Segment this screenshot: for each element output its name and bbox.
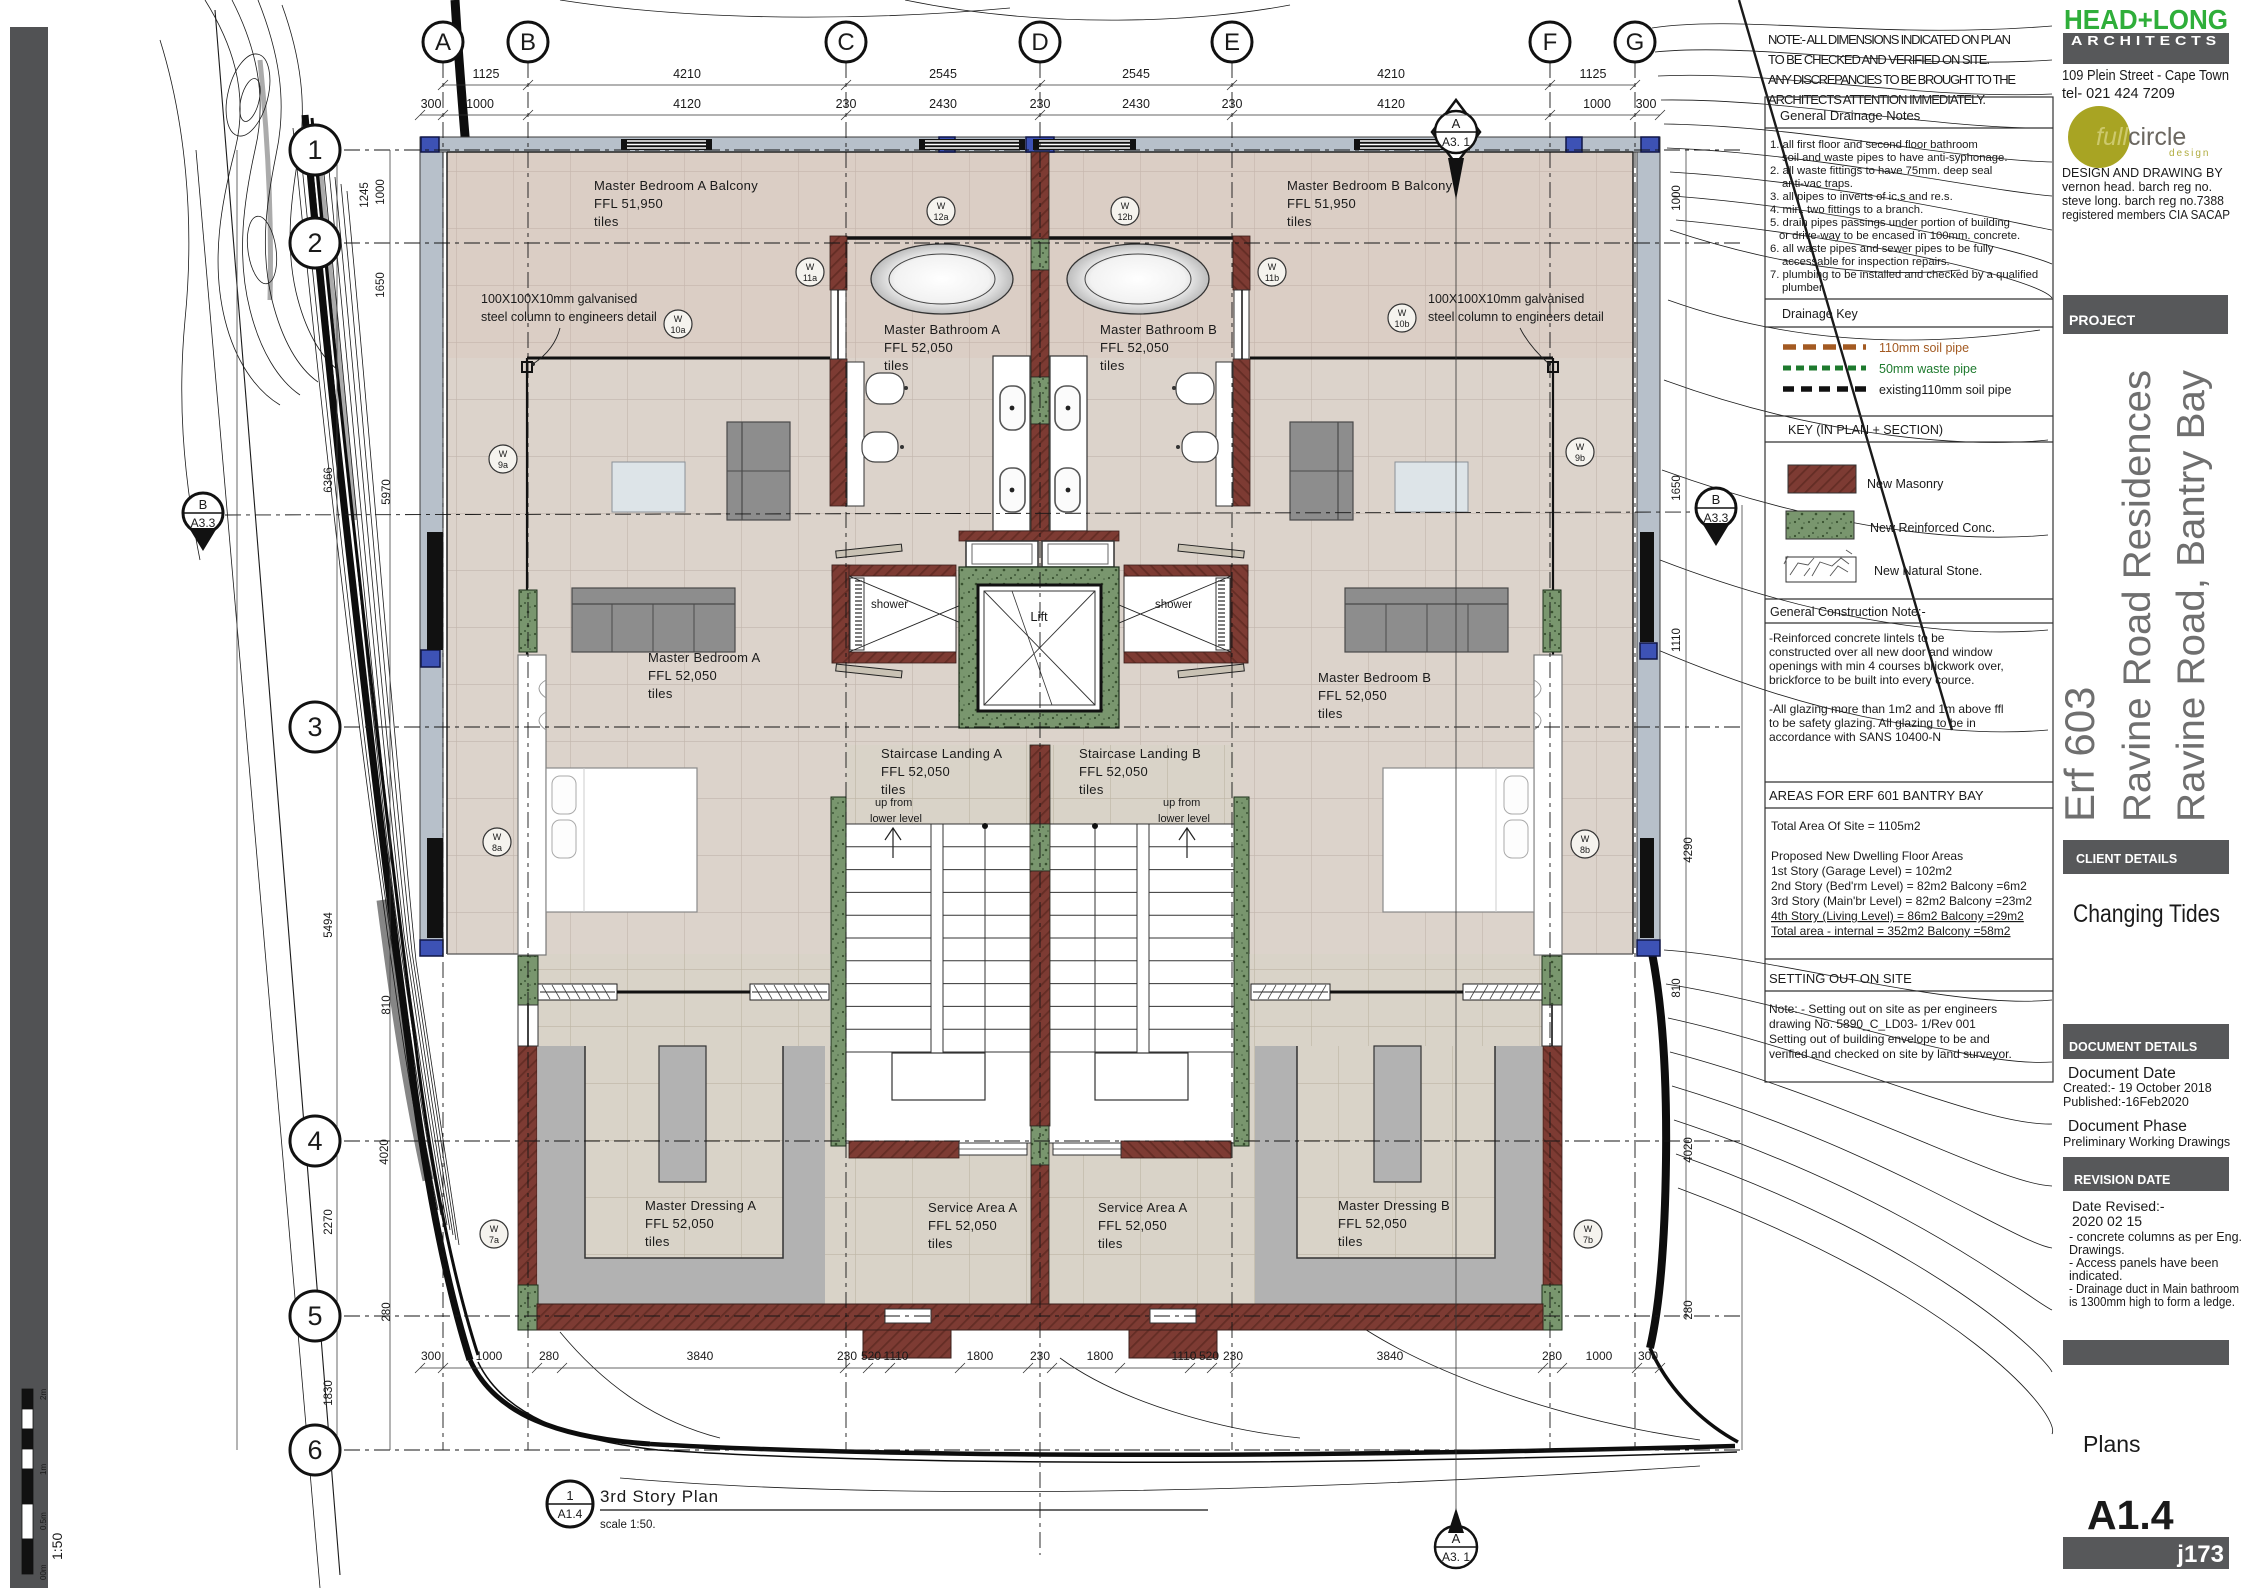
svg-text:-Reinforced concrete lintels t: -Reinforced concrete lintels to be bbox=[1769, 631, 1945, 645]
svg-text:tiles: tiles bbox=[1318, 706, 1343, 721]
svg-text:FFL 52,050: FFL 52,050 bbox=[1338, 1216, 1407, 1231]
svg-text:CLIENT DETAILS: CLIENT DETAILS bbox=[2076, 852, 2177, 866]
svg-text:A: A bbox=[1452, 1531, 1461, 1546]
svg-text:steel column to engineers deta: steel column to engineers detail bbox=[1428, 310, 1604, 324]
svg-text:12a: 12a bbox=[933, 212, 948, 222]
svg-text:Drawings.: Drawings. bbox=[2069, 1243, 2125, 1257]
svg-text:- concrete columns as per Eng.: - concrete columns as per Eng. bbox=[2069, 1230, 2242, 1244]
svg-text:3rd Story (Main'br Level) = 8: 3rd Story (Main'br Level) = 82m2 Balcony… bbox=[1771, 894, 2032, 908]
svg-text:FFL 51,950: FFL 51,950 bbox=[594, 196, 663, 211]
svg-text:7. plumbing to be installed an: 7. plumbing to be installed and checked … bbox=[1770, 269, 2038, 281]
svg-text:3. all pipes to inverts of ic.: 3. all pipes to inverts of ic.s and re.s… bbox=[1770, 191, 1953, 203]
svg-text:A3. 1: A3. 1 bbox=[1442, 135, 1470, 149]
svg-text:brickforce to be built into ev: brickforce to be built into every cource… bbox=[1769, 673, 1974, 687]
svg-text:8a: 8a bbox=[492, 843, 502, 853]
svg-text:G: G bbox=[1626, 29, 1645, 56]
svg-text:Changing Tides: Changing Tides bbox=[2073, 900, 2220, 928]
svg-text:W: W bbox=[499, 449, 508, 459]
svg-text:New Masonry: New Masonry bbox=[1867, 477, 1944, 491]
svg-text:Ravine Road, Bantry Bay: Ravine Road, Bantry Bay bbox=[2170, 369, 2213, 822]
svg-text:4020: 4020 bbox=[1683, 1137, 1695, 1163]
svg-text:W: W bbox=[493, 832, 502, 842]
svg-text:5. drain pipes passings under: 5. drain pipes passings under portion of… bbox=[1770, 217, 2010, 229]
svg-text:A3.3: A3.3 bbox=[191, 516, 216, 530]
svg-text:280: 280 bbox=[1542, 1349, 1562, 1363]
svg-text:5494: 5494 bbox=[323, 912, 335, 938]
svg-text:5: 5 bbox=[307, 1301, 322, 1331]
svg-text:W: W bbox=[1268, 262, 1277, 272]
svg-text:F: F bbox=[1543, 29, 1558, 56]
svg-text:Note: - Setting out on site a: Note: - Setting out on site as per engin… bbox=[1769, 1002, 1997, 1016]
svg-text:indicated.: indicated. bbox=[2069, 1269, 2123, 1283]
svg-text:Service Area A: Service Area A bbox=[1098, 1200, 1187, 1215]
svg-text:2545: 2545 bbox=[929, 67, 957, 81]
svg-text:A: A bbox=[435, 29, 451, 56]
svg-text:230: 230 bbox=[1030, 97, 1051, 111]
svg-text:1m: 1m bbox=[39, 1464, 48, 1475]
svg-text:W: W bbox=[674, 314, 683, 324]
svg-text:4020: 4020 bbox=[379, 1139, 391, 1165]
svg-text:1st Story (Garage Level) = 102: 1st Story (Garage Level) = 102m2 bbox=[1771, 864, 1952, 878]
svg-text:0.5m: 0.5m bbox=[39, 1512, 48, 1530]
svg-text:openings with min 4 courses br: openings with min 4 courses brickwork ov… bbox=[1769, 659, 2004, 673]
svg-text:8b: 8b bbox=[1580, 845, 1590, 855]
svg-text:AREAS FOR ERF 601 BANTRY BAY: AREAS FOR ERF 601 BANTRY BAY bbox=[1769, 788, 1984, 803]
svg-text:W: W bbox=[1576, 442, 1585, 452]
svg-text:B: B bbox=[1712, 492, 1721, 507]
svg-text:2m: 2m bbox=[39, 1389, 48, 1400]
svg-text:to be safety glazing. All glaz: to be safety glazing. All glazing to be … bbox=[1769, 716, 1976, 730]
svg-text:W: W bbox=[1398, 308, 1407, 318]
svg-text:j173: j173 bbox=[2176, 1541, 2224, 1568]
svg-text:1:50: 1:50 bbox=[49, 1533, 65, 1560]
svg-text:Preliminary Working Drawings: Preliminary Working Drawings bbox=[2063, 1135, 2230, 1149]
svg-text:ARCHITECTS ATTENTION IMMEDIATE: ARCHITECTS ATTENTION IMMEDIATELY. bbox=[1768, 92, 1986, 107]
svg-text:300: 300 bbox=[1638, 1349, 1658, 1363]
svg-text:Erf 603: Erf 603 bbox=[2056, 687, 2103, 822]
svg-text:300: 300 bbox=[421, 97, 442, 111]
svg-text:W: W bbox=[1581, 834, 1590, 844]
svg-text:12b: 12b bbox=[1117, 212, 1132, 222]
svg-text:Master Dressing A: Master Dressing A bbox=[645, 1198, 756, 1213]
svg-text:is 1300mm high to form a ledge: is 1300mm high to form a ledge. bbox=[2069, 1295, 2235, 1309]
svg-text:7b: 7b bbox=[1583, 1235, 1593, 1245]
svg-text:6: 6 bbox=[307, 1435, 322, 1465]
svg-text:D: D bbox=[1031, 29, 1048, 56]
svg-text:3rd Story Plan: 3rd Story Plan bbox=[600, 1487, 719, 1506]
svg-text:1000: 1000 bbox=[1671, 185, 1683, 211]
svg-text:2430: 2430 bbox=[929, 97, 957, 111]
svg-text:6. all waste pipes and sewer p: 6. all waste pipes and sewer pipes to be… bbox=[1770, 243, 1994, 255]
svg-text:-All glazing more than 1m2 and: -All glazing more than 1m2 and 1m above … bbox=[1769, 702, 2004, 716]
svg-text:Master Dressing B: Master Dressing B bbox=[1338, 1198, 1450, 1213]
svg-text:accordance with SANS 10400-N: accordance with SANS 10400-N bbox=[1769, 730, 1941, 744]
svg-text:REVISION DATE: REVISION DATE bbox=[2074, 1173, 2170, 1187]
svg-text:1110: 1110 bbox=[1671, 628, 1683, 652]
svg-text:1000: 1000 bbox=[1586, 1349, 1613, 1363]
svg-text:Master Bathroom B: Master Bathroom B bbox=[1100, 322, 1217, 337]
svg-text:109 Plein Street - Cape Tow: 109 Plein Street - Cape Town bbox=[2062, 68, 2229, 84]
svg-text:4290: 4290 bbox=[1683, 837, 1695, 863]
svg-text:1125: 1125 bbox=[1580, 67, 1607, 81]
svg-text:4120: 4120 bbox=[1377, 97, 1405, 111]
svg-text:DESIGN AND DRAWING BY: DESIGN AND DRAWING BY bbox=[2062, 166, 2223, 180]
svg-text:W: W bbox=[490, 1224, 499, 1234]
svg-text:FFL 52,050: FFL 52,050 bbox=[648, 668, 717, 683]
svg-text:shower: shower bbox=[871, 599, 908, 611]
svg-text:Staircase Landing B: Staircase Landing B bbox=[1079, 746, 1201, 761]
svg-text:design: design bbox=[2169, 148, 2210, 159]
svg-text:1650: 1650 bbox=[375, 272, 387, 298]
svg-text:tiles: tiles bbox=[645, 1234, 670, 1249]
svg-text:SETTING OUT ON SITE: SETTING OUT ON SITE bbox=[1769, 971, 1912, 986]
svg-text:A: A bbox=[1452, 116, 1461, 131]
svg-text:ARCHITECTS: ARCHITECTS bbox=[2071, 33, 2221, 48]
svg-text:Plans: Plans bbox=[2083, 1431, 2141, 1457]
svg-text:10a: 10a bbox=[670, 325, 685, 335]
svg-text:3840: 3840 bbox=[1377, 1349, 1404, 1363]
svg-text:tiles: tiles bbox=[594, 214, 619, 229]
svg-text:1650: 1650 bbox=[1671, 475, 1683, 501]
svg-text:300: 300 bbox=[421, 1349, 441, 1363]
svg-text:Master Bedroom A Balcony: Master Bedroom A Balcony bbox=[594, 178, 758, 193]
svg-text:1800: 1800 bbox=[1087, 1349, 1114, 1363]
svg-text:810: 810 bbox=[381, 995, 393, 1014]
svg-text:ANY DISCREPANCIES TO BE BROUGH: ANY DISCREPANCIES TO BE BROUGHT TO THE bbox=[1768, 72, 2016, 87]
svg-text:9a: 9a bbox=[498, 460, 508, 470]
svg-text:9b: 9b bbox=[1575, 453, 1585, 463]
svg-text:Master Bathroom A: Master Bathroom A bbox=[884, 322, 1000, 337]
svg-text:or drive-way to be encased in: or drive-way to be encased in 100mm. con… bbox=[1779, 230, 2020, 242]
svg-text:circle: circle bbox=[2128, 123, 2186, 151]
svg-text:existing110mm soil pipe: existing110mm soil pipe bbox=[1879, 383, 2012, 397]
svg-text:- Access panels have been: - Access panels have been bbox=[2069, 1256, 2218, 1270]
svg-text:up from: up from bbox=[1163, 797, 1200, 809]
svg-text:General Drainage Notes: General Drainage Notes bbox=[1780, 108, 1921, 123]
svg-text:tiles: tiles bbox=[1079, 782, 1104, 797]
svg-text:DOCUMENT DETAILS: DOCUMENT DETAILS bbox=[2069, 1040, 2197, 1054]
svg-text:tel- 021 424 7209: tel- 021 424 7209 bbox=[2062, 86, 2175, 102]
svg-text:1000: 1000 bbox=[1583, 97, 1611, 111]
svg-text:1245: 1245 bbox=[359, 182, 371, 208]
svg-text:tiles: tiles bbox=[928, 1236, 953, 1251]
svg-text:tiles: tiles bbox=[1098, 1236, 1123, 1251]
svg-text:1110: 1110 bbox=[884, 1349, 909, 1363]
svg-text:W: W bbox=[1584, 1224, 1593, 1234]
svg-text:280: 280 bbox=[1683, 1300, 1695, 1319]
svg-text:Created:- 19 October 2018: Created:- 19 October 2018 bbox=[2063, 1081, 2212, 1095]
svg-text:50mm waste pipe: 50mm waste pipe bbox=[1879, 362, 1977, 376]
svg-text:1000: 1000 bbox=[466, 97, 494, 111]
svg-text:tiles: tiles bbox=[884, 358, 909, 373]
svg-text:100X100X10mm galvanised: 100X100X10mm galvanised bbox=[1428, 292, 1584, 306]
svg-text:up from: up from bbox=[875, 797, 912, 809]
svg-text:W: W bbox=[937, 201, 946, 211]
svg-text:3: 3 bbox=[307, 712, 322, 742]
svg-text:Staircase Landing A: Staircase Landing A bbox=[881, 746, 1002, 761]
svg-text:00m: 00m bbox=[39, 1564, 48, 1580]
svg-text:KEY (IN PLAN + SECTION): KEY (IN PLAN + SECTION) bbox=[1788, 423, 1943, 437]
svg-text:FFL 51,950: FFL 51,950 bbox=[1287, 196, 1356, 211]
svg-text:Document Date: Document Date bbox=[2068, 1065, 2176, 1082]
svg-text:2nd Story (Bed'rm Level) = 82: 2nd Story (Bed'rm Level) = 82m2 Balcony … bbox=[1771, 879, 2027, 893]
svg-text:vernon head. barch reg no.: vernon head. barch reg no. bbox=[2062, 180, 2212, 194]
svg-text:1000: 1000 bbox=[476, 1349, 503, 1363]
svg-text:1: 1 bbox=[566, 1488, 573, 1503]
svg-text:tiles: tiles bbox=[648, 686, 673, 701]
svg-text:registered members CIA SACAP: registered members CIA SACAP bbox=[2062, 208, 2230, 222]
svg-text:lower level: lower level bbox=[1158, 813, 1210, 825]
svg-text:1830: 1830 bbox=[323, 1380, 335, 1406]
svg-text:810: 810 bbox=[1671, 978, 1683, 997]
svg-text:280: 280 bbox=[539, 1349, 559, 1363]
svg-text:Master Bedroom A: Master Bedroom A bbox=[648, 650, 760, 665]
svg-text:Master Bedroom B: Master Bedroom B bbox=[1318, 670, 1431, 685]
svg-text:Date Revised:-: Date Revised:- bbox=[2072, 1198, 2165, 1214]
svg-text:- Drainage duct in Main bathro: - Drainage duct in Main bathroom bbox=[2069, 1282, 2239, 1296]
svg-text:2020 02 15: 2020 02 15 bbox=[2072, 1213, 2142, 1229]
svg-text:anti-vac traps.: anti-vac traps. bbox=[1782, 178, 1853, 190]
svg-text:Ravine Road Residences: Ravine Road Residences bbox=[2116, 370, 2159, 822]
svg-text:4210: 4210 bbox=[1377, 67, 1405, 81]
svg-text:TO BE CHECKED AND VERIFIED ON: TO BE CHECKED AND VERIFIED ON SITE. bbox=[1768, 52, 1990, 67]
svg-text:Lift: Lift bbox=[1030, 609, 1048, 624]
svg-text:accessable for inspection repa: accessable for inspection repairs. bbox=[1782, 256, 1950, 268]
svg-text:General Construction Note:-: General Construction Note:- bbox=[1770, 605, 1926, 619]
svg-text:steve long. barch reg no.7388: steve long. barch reg no.7388 bbox=[2062, 194, 2224, 208]
svg-text:Setting out of building envelo: Setting out of building envelope to be a… bbox=[1769, 1032, 1990, 1046]
svg-text:300: 300 bbox=[1636, 97, 1657, 111]
svg-text:Document Phase: Document Phase bbox=[2068, 1118, 2187, 1135]
svg-text:A3. 1: A3. 1 bbox=[1442, 1550, 1470, 1564]
svg-text:7a: 7a bbox=[489, 1235, 499, 1245]
svg-text:3840: 3840 bbox=[687, 1349, 714, 1363]
svg-text:FFL 52,050: FFL 52,050 bbox=[881, 764, 950, 779]
svg-text:230: 230 bbox=[1030, 1349, 1050, 1363]
svg-text:NOTE:- ALL DIMENSIONS INDICATE: NOTE:- ALL DIMENSIONS INDICATED ON PLAN bbox=[1768, 32, 2011, 47]
svg-text:Total area - internal = 352m2: Total area - internal = 352m2 Balcony =5… bbox=[1771, 924, 2011, 938]
svg-text:FFL 52,050: FFL 52,050 bbox=[1098, 1218, 1167, 1233]
svg-text:1000: 1000 bbox=[375, 179, 387, 205]
svg-text:W: W bbox=[1121, 201, 1130, 211]
svg-text:280: 280 bbox=[381, 1302, 393, 1321]
svg-text:110mm soil pipe: 110mm soil pipe bbox=[1879, 341, 1969, 355]
svg-text:2270: 2270 bbox=[323, 1209, 335, 1235]
svg-text:FFL 52,050: FFL 52,050 bbox=[928, 1218, 997, 1233]
svg-text:plumber.: plumber. bbox=[1782, 282, 1825, 294]
svg-text:tiles: tiles bbox=[881, 782, 906, 797]
svg-text:2430: 2430 bbox=[1122, 97, 1150, 111]
svg-text:230: 230 bbox=[836, 97, 857, 111]
svg-text:Proposed New Dwelling Floor Ar: Proposed New Dwelling Floor Areas bbox=[1771, 849, 1963, 863]
svg-text:4: 4 bbox=[307, 1126, 322, 1156]
svg-text:constructed over all new door: constructed over all new door and window bbox=[1769, 645, 1993, 659]
svg-text:lower level: lower level bbox=[870, 813, 922, 825]
svg-text:B: B bbox=[199, 497, 208, 512]
svg-text:1. all first floor and second: 1. all first floor and second floor bath… bbox=[1770, 139, 1978, 151]
svg-text:Master Bedroom B Balcony: Master Bedroom B Balcony bbox=[1287, 178, 1453, 193]
svg-text:soil and waste pipes to have a: soil and waste pipes to have anti-syphon… bbox=[1782, 152, 2007, 164]
svg-text:HEAD+LONG: HEAD+LONG bbox=[2064, 4, 2228, 35]
svg-text:W: W bbox=[806, 262, 815, 272]
svg-text:Total Area Of Site = 1105m2: Total Area Of Site = 1105m2 bbox=[1771, 819, 1921, 833]
svg-text:tiles: tiles bbox=[1100, 358, 1125, 373]
svg-text:Drainage Key: Drainage Key bbox=[1782, 307, 1858, 321]
svg-text:11a: 11a bbox=[803, 273, 817, 283]
svg-text:5970: 5970 bbox=[381, 479, 393, 505]
svg-text:2545: 2545 bbox=[1122, 67, 1150, 81]
svg-text:1: 1 bbox=[307, 135, 322, 165]
svg-text:FFL 52,050: FFL 52,050 bbox=[1079, 764, 1148, 779]
svg-text:New Natural Stone.: New Natural Stone. bbox=[1874, 564, 1982, 578]
svg-text:verified and checked on site b: verified and checked on site by land sur… bbox=[1769, 1047, 2012, 1061]
svg-text:Published:-16Feb2020: Published:-16Feb2020 bbox=[2063, 1095, 2189, 1109]
svg-text:4210: 4210 bbox=[673, 67, 701, 81]
svg-text:6366: 6366 bbox=[323, 467, 335, 493]
svg-text:drawing No. 5890_C_LD03- 1/Re: drawing No. 5890_C_LD03- 1/Rev 001 bbox=[1769, 1017, 1976, 1031]
svg-text:shower: shower bbox=[1155, 599, 1192, 611]
svg-text:100X100X10mm galvanised: 100X100X10mm galvanised bbox=[481, 292, 637, 306]
svg-text:Service Area A: Service Area A bbox=[928, 1200, 1017, 1215]
svg-text:E: E bbox=[1224, 29, 1240, 56]
svg-text:520: 520 bbox=[1199, 1349, 1219, 1363]
svg-text:FFL 52,050: FFL 52,050 bbox=[1318, 688, 1387, 703]
svg-text:11b: 11b bbox=[1265, 273, 1279, 283]
svg-text:1110: 1110 bbox=[1172, 1349, 1197, 1363]
svg-text:230: 230 bbox=[1223, 1349, 1243, 1363]
svg-text:1125: 1125 bbox=[473, 67, 500, 81]
svg-text:4th Story (Living Level) =: 4th Story (Living Level) = 86m2 Balcony … bbox=[1771, 909, 2024, 923]
svg-text:A1.4: A1.4 bbox=[2087, 1492, 2174, 1538]
svg-text:10b: 10b bbox=[1394, 319, 1409, 329]
svg-text:230: 230 bbox=[1222, 97, 1243, 111]
svg-text:A3.3: A3.3 bbox=[1704, 511, 1729, 525]
svg-text:tiles: tiles bbox=[1338, 1234, 1363, 1249]
svg-text:520: 520 bbox=[861, 1349, 881, 1363]
svg-text:full: full bbox=[2096, 123, 2129, 151]
svg-text:FFL 52,050: FFL 52,050 bbox=[645, 1216, 714, 1231]
svg-text:FFL 52,050: FFL 52,050 bbox=[1100, 340, 1169, 355]
svg-text:tiles: tiles bbox=[1287, 214, 1312, 229]
svg-text:230: 230 bbox=[837, 1349, 857, 1363]
svg-text:2: 2 bbox=[307, 228, 322, 258]
svg-text:4. min. two fittings to a bran: 4. min. two fittings to a branch. bbox=[1770, 204, 1923, 216]
svg-text:PROJECT: PROJECT bbox=[2069, 312, 2136, 328]
svg-text:1800: 1800 bbox=[967, 1349, 994, 1363]
svg-text:steel column to engineers deta: steel column to engineers detail bbox=[481, 310, 657, 324]
svg-text:B: B bbox=[520, 29, 536, 56]
svg-text:A1.4: A1.4 bbox=[558, 1507, 583, 1521]
svg-text:FFL 52,050: FFL 52,050 bbox=[884, 340, 953, 355]
svg-text:scale 1:50.: scale 1:50. bbox=[600, 1519, 656, 1531]
svg-text:New Reinforced Conc.: New Reinforced Conc. bbox=[1870, 521, 1995, 535]
svg-text:C: C bbox=[837, 29, 854, 56]
svg-text:2. all waste fittings to have: 2. all waste fittings to have 75mm. deep… bbox=[1770, 165, 1992, 177]
svg-text:4120: 4120 bbox=[673, 97, 701, 111]
